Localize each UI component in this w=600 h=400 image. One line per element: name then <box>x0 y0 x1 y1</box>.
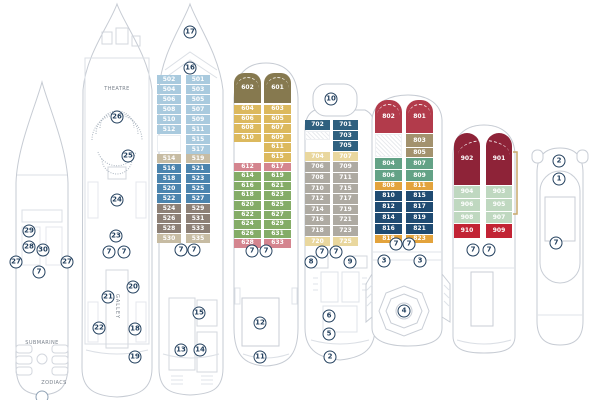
legend-marker-19: 19 <box>129 351 142 364</box>
deck-plan-1: SUBMARINE ZODIACS 29283027277 <box>8 75 76 400</box>
cabin-515: 515 <box>186 135 210 144</box>
cabin-622: 622 <box>234 211 261 220</box>
cabin-506: 506 <box>157 95 181 104</box>
hull-outline-1 <box>8 75 76 400</box>
cabin-525: 525 <box>186 184 210 193</box>
legend-marker-7: 7 <box>483 244 496 257</box>
legend-marker-23: 23 <box>110 230 123 243</box>
cabin-821: 821 <box>406 224 433 234</box>
cabin-514: 514 <box>157 154 181 163</box>
cabin-717: 717 <box>333 194 358 204</box>
cabin-812: 812 <box>375 202 402 212</box>
legend-marker-10: 10 <box>325 93 338 106</box>
cabin-616: 616 <box>234 182 261 191</box>
cabin-714: 714 <box>305 205 330 215</box>
cabin-623: 623 <box>264 191 291 200</box>
legend-marker-4: 4 <box>398 305 411 318</box>
legend-marker-22: 22 <box>93 322 106 335</box>
cabin-703: 703 <box>333 131 358 141</box>
legend-marker-18: 18 <box>129 323 142 336</box>
legend-marker-26: 26 <box>111 111 124 124</box>
cabin-527: 527 <box>186 194 210 203</box>
legend-marker-7: 7 <box>260 245 273 258</box>
cabin-721: 721 <box>333 215 358 225</box>
cabin-607: 607 <box>264 124 291 133</box>
cabin-816: 816 <box>375 224 402 234</box>
legend-marker-6: 6 <box>323 310 336 323</box>
legend-marker-15: 15 <box>193 307 206 320</box>
cabin-529: 529 <box>186 204 210 213</box>
cabin-819: 819 <box>406 213 433 223</box>
cabin-707: 707 <box>333 152 358 162</box>
cabin-512: 512 <box>157 125 181 134</box>
theatre-label: THEATRE <box>104 86 130 92</box>
cabin-910: 910 <box>454 224 480 238</box>
cabin-810: 810 <box>375 191 402 201</box>
deck-plan-8: 217 <box>525 143 595 350</box>
cabin-603: 603 <box>264 105 291 114</box>
legend-marker-29: 29 <box>23 225 36 238</box>
cabin-711: 711 <box>333 173 358 183</box>
legend-marker-2: 2 <box>324 351 337 364</box>
cabin-712: 712 <box>305 194 330 204</box>
legend-marker-7: 7 <box>188 244 201 257</box>
cabin-720: 720 <box>305 237 330 247</box>
cabin-612: 612 <box>234 163 261 172</box>
deck-plan-3: 5025045065085105125145165185205225245265… <box>153 2 231 398</box>
legend-marker-30: 30 <box>37 244 50 257</box>
cabin-908: 908 <box>454 212 480 223</box>
cabin-523: 523 <box>186 174 210 183</box>
cabin-626: 626 <box>234 230 261 239</box>
cabin-518: 518 <box>157 174 181 183</box>
cabin-806: 806 <box>375 170 402 181</box>
legend-marker-16: 16 <box>184 62 197 75</box>
deck-plan-6: 8028048068088108128148168188018038058078… <box>366 92 450 352</box>
cabin-702: 702 <box>305 120 330 130</box>
zodiacs-label: ZODIACS <box>41 380 66 386</box>
cabin-617: 617 <box>264 163 291 172</box>
port-wing <box>366 274 372 322</box>
legend-marker-7: 7 <box>316 246 329 259</box>
cabin-522: 522 <box>157 194 181 203</box>
legend-marker-1: 1 <box>553 173 566 186</box>
legend-marker-5: 5 <box>323 328 336 341</box>
cabin-531: 531 <box>186 214 210 223</box>
cabin-618: 618 <box>234 191 261 200</box>
cabin-503: 503 <box>186 85 210 94</box>
legend-marker-3: 3 <box>414 255 427 268</box>
legend-marker-7: 7 <box>403 238 416 251</box>
cabin-704: 704 <box>305 152 330 162</box>
cabin-906: 906 <box>454 199 480 211</box>
cabin-716: 716 <box>305 215 330 225</box>
cabin-615: 615 <box>264 153 291 162</box>
legend-marker-17: 17 <box>184 26 197 39</box>
cabin-619: 619 <box>264 172 291 181</box>
cabin-533: 533 <box>186 224 210 233</box>
cabin-709: 709 <box>333 162 358 172</box>
cabin-803: 803 <box>406 134 433 147</box>
galley-label: GALLEY <box>114 294 120 319</box>
legend-marker-7: 7 <box>390 238 403 251</box>
cabin-808: 808 <box>375 182 402 190</box>
legend-marker-13: 13 <box>175 344 188 357</box>
legend-marker-7: 7 <box>103 246 116 259</box>
cabin-706: 706 <box>305 162 330 172</box>
cabin-907: 907 <box>486 212 512 223</box>
cabin-604: 604 <box>234 105 261 114</box>
cabin-809: 809 <box>406 170 433 181</box>
cabin-909: 909 <box>486 224 512 238</box>
cabin-627: 627 <box>264 211 291 220</box>
cabin-609: 609 <box>264 134 291 143</box>
cabin-519: 519 <box>186 154 210 163</box>
cabin-631: 631 <box>264 230 291 239</box>
cabin-507: 507 <box>186 105 210 114</box>
cabin-508: 508 <box>157 105 181 114</box>
cabin-807: 807 <box>406 158 433 169</box>
cabin-620: 620 <box>234 201 261 210</box>
legend-marker-20: 20 <box>127 281 140 294</box>
cabin-611: 611 <box>264 143 291 152</box>
legend-marker-21: 21 <box>102 291 115 304</box>
cabin-516: 516 <box>157 164 181 173</box>
legend-marker-12: 12 <box>254 317 267 330</box>
legend-marker-14: 14 <box>194 344 207 357</box>
cabin-605: 605 <box>264 115 291 124</box>
legend-marker-27: 27 <box>61 256 74 269</box>
cabin-625: 625 <box>264 201 291 210</box>
cabin-804: 804 <box>375 158 402 169</box>
cabin-718: 718 <box>305 226 330 236</box>
legend-marker <box>36 391 49 400</box>
cabin-624: 624 <box>234 220 261 229</box>
legend-marker-3: 3 <box>378 255 391 268</box>
cabin-805: 805 <box>406 148 433 157</box>
legend-marker-7: 7 <box>118 246 131 259</box>
cabin-610: 610 <box>234 134 261 143</box>
cabin-524: 524 <box>157 204 181 213</box>
cabin-517: 517 <box>186 145 210 154</box>
cabin-629: 629 <box>264 220 291 229</box>
cabin-gap <box>375 134 402 157</box>
legend-marker-7: 7 <box>246 245 259 258</box>
cabin-504: 504 <box>157 85 181 94</box>
cabin-904: 904 <box>454 186 480 198</box>
cabin-701: 701 <box>333 120 358 130</box>
cabin-526: 526 <box>157 214 181 223</box>
cabin-719: 719 <box>333 205 358 215</box>
cabin-705: 705 <box>333 141 358 151</box>
cabin-621: 621 <box>264 182 291 191</box>
cabin-715: 715 <box>333 184 358 194</box>
cabin-gap <box>157 135 181 152</box>
cabin-903: 903 <box>486 186 512 198</box>
legend-marker-9: 9 <box>344 256 357 269</box>
cabin-530: 530 <box>157 234 181 243</box>
cabin-509: 509 <box>186 115 210 124</box>
cabin-814: 814 <box>375 213 402 223</box>
cabin-528: 528 <box>157 224 181 233</box>
cabin-905: 905 <box>486 199 512 211</box>
cabin-614: 614 <box>234 172 261 181</box>
cabin-535: 535 <box>186 234 210 243</box>
cabin-811: 811 <box>406 182 433 190</box>
cabin-505: 505 <box>186 95 210 104</box>
cabin-520: 520 <box>157 184 181 193</box>
legend-marker-8: 8 <box>305 256 318 269</box>
cabin-511: 511 <box>186 125 210 134</box>
legend-marker-7: 7 <box>175 244 188 257</box>
cabin-817: 817 <box>406 202 433 212</box>
cabin-723: 723 <box>333 226 358 236</box>
cabin-510: 510 <box>157 115 181 124</box>
cabin-501: 501 <box>186 75 210 84</box>
cabin-gap <box>305 131 330 141</box>
deck-plan-4: 6026046066086106126146166186206226246266… <box>229 60 303 372</box>
cabin-521: 521 <box>186 164 210 173</box>
cabin-710: 710 <box>305 184 330 194</box>
cabin-606: 606 <box>234 115 261 124</box>
legend-marker-27: 27 <box>10 256 23 269</box>
legend-marker-25: 25 <box>122 150 135 163</box>
deck-plan-canvas: SUBMARINE ZODIACS 29283027277 <box>0 0 600 400</box>
legend-marker-7: 7 <box>550 237 563 250</box>
deck-plan-2: THEATRE GALLEY 26252423772021221819 <box>78 2 158 400</box>
cabin-608: 608 <box>234 124 261 133</box>
legend-marker-7: 7 <box>330 246 343 259</box>
cabin-708: 708 <box>305 173 330 183</box>
legend-marker-7: 7 <box>467 244 480 257</box>
deck-plan-7: 90290490690891090190390590790977 <box>446 122 522 357</box>
submarine-label: SUBMARINE <box>25 340 58 346</box>
legend-marker-24: 24 <box>111 194 124 207</box>
legend-marker-2: 2 <box>553 155 566 168</box>
legend-marker-7: 7 <box>33 266 46 279</box>
legend-marker-11: 11 <box>254 351 267 364</box>
legend-marker-28: 28 <box>23 241 36 254</box>
cabin-502: 502 <box>157 75 181 84</box>
cabin-815: 815 <box>406 191 433 201</box>
